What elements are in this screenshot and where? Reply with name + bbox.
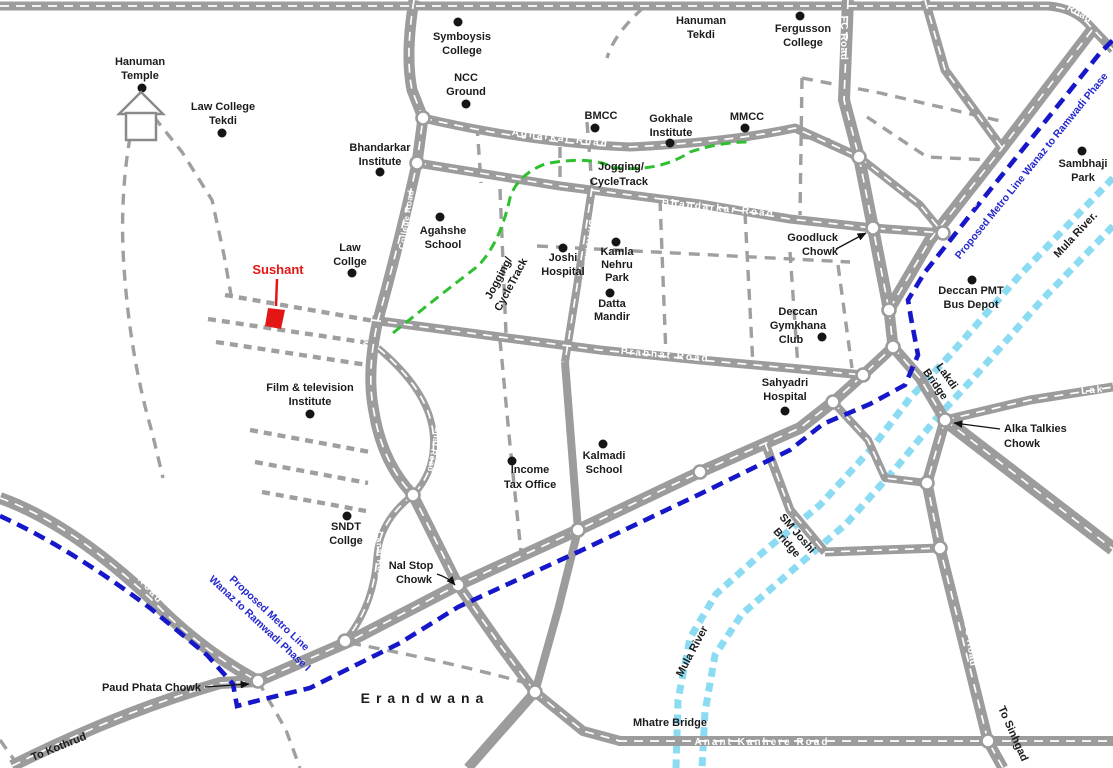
junctions: [252, 112, 995, 748]
label-paud-phata: Paud Phata Chowk: [102, 682, 202, 694]
label-fergusson-2: College: [783, 37, 823, 49]
river-bank-a: [676, 178, 1113, 768]
junction-goodluck-chowk: [867, 222, 880, 235]
junction-nal-stop-chowk: [452, 579, 465, 592]
label-jogging-h-2: CycleTrack: [590, 176, 649, 188]
label-alka-talkies-1: Alka Talkies: [1004, 423, 1067, 435]
label-law-college-tekdi-1: Law College: [191, 101, 255, 113]
label-hanuman-temple-1: Hanuman: [115, 56, 165, 68]
film-lane-3: [262, 492, 366, 511]
label-kamla-1: Kamla: [600, 246, 634, 258]
label-kamla-3: Park: [605, 272, 630, 284]
dot-bmcc: [591, 124, 600, 133]
label-deccan-pmt-2: Bus Depot: [944, 299, 999, 311]
dot-datta-mandir: [606, 289, 615, 298]
junction-circle: [853, 151, 866, 164]
tekdi-dash: [607, 8, 643, 58]
dot-sambhaji-park: [1078, 147, 1087, 156]
junction-alka-talkies-chowk: [939, 414, 952, 427]
goodluck-sq-v: [800, 78, 802, 215]
label-alka-talkies-2: Chowk: [1004, 438, 1041, 450]
label-film-tv-1: Film & television: [266, 382, 354, 394]
junction-paud-phata-chowk: [252, 675, 265, 688]
sushant-lane-2: [208, 319, 376, 344]
junction-circle: [529, 686, 542, 699]
road-top-diagonal: [925, 0, 1002, 148]
map-canvas: Road College Road Law Agharkar Road Bhan…: [0, 0, 1113, 768]
film-lane-2: [255, 462, 368, 483]
label-agahshe-2: School: [425, 239, 462, 251]
grid-v7: [838, 265, 852, 368]
dot-law-collge: [348, 269, 357, 278]
dot-gokhale-institute: [666, 139, 675, 148]
junction-circle: [857, 369, 870, 382]
label-sndt-2: Collge: [329, 535, 363, 547]
label-road-top-right: Road: [1065, 2, 1094, 25]
junction-circle: [411, 157, 424, 170]
label-deccan-pmt-1: Deccan PMT: [938, 285, 1004, 297]
label-sahyadri-2: Hospital: [763, 391, 806, 403]
label-gokhale-1: Gokhale: [649, 113, 692, 125]
label-agahshe-1: Agahshe: [420, 225, 466, 237]
label-ncc-1: NCC: [454, 72, 478, 84]
label-mhatre-bridge: Mhatre Bridge: [633, 717, 707, 729]
dot-fergusson-college: [796, 12, 805, 21]
label-sushant: Sushant: [252, 262, 304, 277]
road-canal-upper: [378, 348, 434, 495]
label-sambhaji-2: Park: [1071, 172, 1096, 184]
label-hanuman-temple-2: Temple: [121, 70, 159, 82]
junction-circle: [339, 635, 352, 648]
dot-ncc-ground: [462, 100, 471, 109]
dot-deccan-gymkhana-club: [818, 333, 827, 342]
income-tax-lane-road: [500, 340, 521, 552]
sushant-lane-3: [216, 342, 374, 366]
label-law-collge-1: Law: [339, 242, 361, 254]
label-law-college-tekdi-2: Tekdi: [209, 115, 237, 127]
label-bmcc: BMCC: [585, 110, 618, 122]
label-canal-road-upper: Canal Road: [426, 420, 445, 473]
mula-river: [676, 178, 1113, 768]
trail-temple-west: [123, 100, 163, 478]
label-bhandarkar-inst-2: Institute: [359, 156, 402, 168]
junction-circle: [417, 112, 430, 125]
label-deccan-gym-2: Gymkhana: [770, 320, 827, 332]
road-top-edge: [0, 6, 1113, 50]
label-lak-road: Lak: [1081, 384, 1105, 397]
film-lane-1: [250, 430, 370, 452]
goodluck-arrow: [836, 233, 866, 249]
junction-circle: [827, 396, 840, 409]
dot-kalmadi-school: [599, 440, 608, 449]
label-bhandarkar-road: Bhandarkar Road: [661, 197, 775, 220]
junction-circle: [572, 524, 585, 537]
dot-sahyadri-hospital: [781, 407, 790, 416]
label-datta-1: Datta: [598, 298, 626, 310]
label-symboysis-1: Symboysis: [433, 31, 491, 43]
junction-circle: [921, 477, 934, 490]
sushant-lane-1: [225, 295, 380, 322]
dot-agahshe-school: [436, 213, 445, 222]
dot-hanuman-temple: [138, 84, 147, 93]
label-mmcc: MMCC: [730, 111, 764, 123]
dot-film-tv-institute: [306, 410, 315, 419]
road-erandwana-se: [535, 692, 620, 741]
dot-sndt-collge: [343, 512, 352, 521]
label-joshi-2: Hospital: [541, 266, 584, 278]
dot-bhandarkar-institute: [376, 168, 385, 177]
label-sndt-1: SNDT: [331, 521, 361, 533]
road-agharkar: [423, 118, 859, 157]
temple-icon: [119, 92, 163, 140]
label-sahyadri-1: Sahyadri: [762, 377, 808, 389]
label-gokhale-2: Institute: [650, 127, 693, 139]
label-fergusson-1: Fergusson: [775, 23, 832, 35]
junction-circle: [934, 542, 947, 555]
junction-circle: [694, 466, 707, 479]
dot-deccan-pmt: [968, 276, 977, 285]
junction-circle: [937, 227, 950, 240]
label-canal-road-lower: Canal Road: [374, 531, 386, 583]
label-deccan-gym-1: Deccan: [778, 306, 817, 318]
label-kalmadi-1: Kalmadi: [583, 450, 626, 462]
junction-circle: [407, 489, 420, 502]
dot-mmcc: [741, 124, 750, 133]
label-goodluck-2: Chowk: [802, 246, 839, 258]
label-hanuman-tekdi-2: Tekdi: [687, 29, 715, 41]
label-nal-stop-2: Chowk: [396, 574, 433, 586]
label-film-tv-2: Institute: [289, 396, 332, 408]
label-ito-2: Tax Office: [504, 479, 556, 491]
label-nal-stop-1: Nal Stop: [389, 560, 434, 572]
label-kalmadi-2: School: [586, 464, 623, 476]
grid-v5: [745, 213, 753, 366]
goodluck-d2: [867, 117, 990, 160]
label-sambhaji-1: Sambhaji: [1059, 158, 1108, 170]
label-hanuman-tekdi-1: Hanuman: [676, 15, 726, 27]
label-goodluck-1: Goodluck: [787, 232, 839, 244]
label-prabhat-road: Prabhat Road: [620, 346, 710, 365]
label-ito-1: Income: [511, 464, 550, 476]
label-bhandarkar-inst-1: Bhandarkar: [349, 142, 411, 154]
label-erandwana: Erandwana: [361, 690, 490, 706]
grid-v4: [660, 200, 666, 356]
map-stage: Road College Road Law Agharkar Road Bhan…: [0, 0, 1113, 768]
label-fc-road: FC Road: [838, 16, 849, 61]
label-metro-sw-1: Proposed Metro Line: [227, 573, 312, 653]
label-jogging-h-1: Jogging/: [598, 161, 644, 173]
label-anant-kanhere-road: Anant Kanhere Road: [695, 737, 830, 748]
label-datta-2: Mandir: [594, 311, 631, 323]
road-lbs: [927, 420, 1003, 768]
junction-circle: [887, 341, 900, 354]
label-kamla-2: Nehru: [601, 259, 633, 271]
label-ncc-2: Ground: [446, 86, 486, 98]
label-joshi-1: Joshi: [549, 252, 578, 264]
junction-circle: [982, 735, 995, 748]
label-law-collge-2: Collge: [333, 256, 367, 268]
label-symboysis-2: College: [442, 45, 482, 57]
junction-circle: [883, 304, 896, 317]
dot-law-college-tekdi: [218, 129, 227, 138]
label-deccan-gym-3: Club: [779, 334, 804, 346]
dot-symboysis-college: [454, 18, 463, 27]
